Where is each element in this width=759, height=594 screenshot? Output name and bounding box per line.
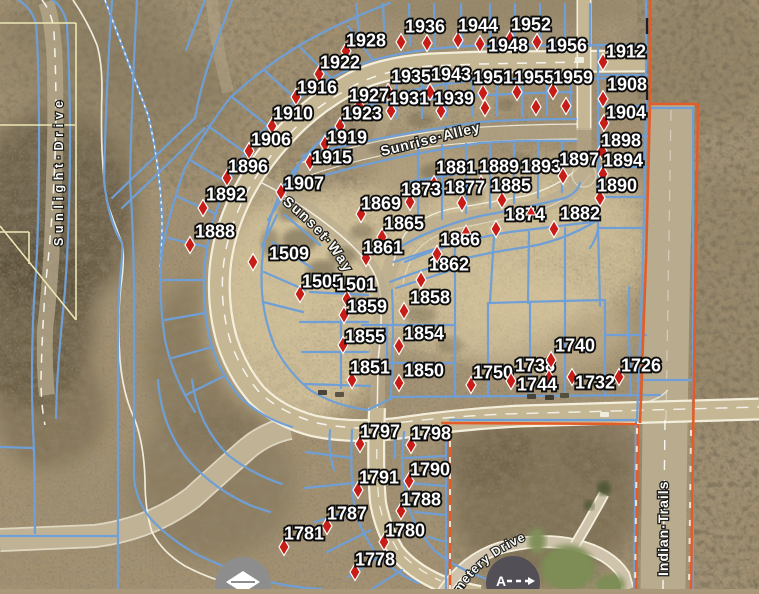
svg-text:1943: 1943	[431, 65, 471, 85]
svg-text:Indian·Trails: Indian·Trails	[655, 481, 671, 576]
svg-text:1923: 1923	[342, 104, 382, 124]
svg-text:1866: 1866	[440, 230, 480, 250]
svg-text:1935: 1935	[391, 67, 431, 87]
svg-text:1922: 1922	[320, 53, 360, 73]
svg-text:1897: 1897	[559, 150, 599, 170]
svg-text:1851: 1851	[350, 358, 390, 378]
svg-text:1888: 1888	[195, 222, 235, 242]
svg-text:1939: 1939	[434, 89, 474, 109]
svg-text:1855: 1855	[345, 327, 385, 347]
svg-text:1781: 1781	[284, 524, 324, 544]
svg-text:1881: 1881	[436, 158, 476, 178]
svg-text:1927: 1927	[349, 86, 389, 106]
svg-text:1912: 1912	[606, 42, 646, 62]
svg-text:1952: 1952	[511, 15, 551, 35]
svg-text:1501: 1501	[336, 275, 376, 295]
svg-text:1859: 1859	[347, 297, 387, 317]
svg-text:1894: 1894	[603, 151, 643, 171]
svg-text:A: A	[496, 573, 506, 589]
svg-text:1732: 1732	[575, 373, 615, 393]
svg-text:1865: 1865	[384, 214, 424, 234]
svg-text:1890: 1890	[597, 176, 637, 196]
svg-text:1948: 1948	[488, 36, 528, 56]
svg-text:1893: 1893	[521, 157, 561, 177]
svg-text:1956: 1956	[547, 36, 587, 56]
svg-text:1955: 1955	[514, 68, 554, 88]
svg-text:1882: 1882	[560, 204, 600, 224]
svg-text:1791: 1791	[359, 468, 399, 488]
svg-text:1788: 1788	[401, 490, 441, 510]
svg-text:1928: 1928	[346, 31, 386, 51]
svg-text:1896: 1896	[228, 157, 268, 177]
svg-text:1892: 1892	[206, 185, 246, 205]
svg-text:1898: 1898	[601, 131, 641, 151]
svg-text:Sunlight·Drive: Sunlight·Drive	[52, 96, 66, 246]
svg-text:1931: 1931	[389, 89, 429, 109]
svg-text:1509: 1509	[269, 244, 309, 264]
svg-text:1936: 1936	[405, 17, 445, 37]
svg-text:1778: 1778	[355, 550, 395, 570]
svg-text:1854: 1854	[404, 324, 444, 344]
svg-text:1908: 1908	[607, 75, 647, 95]
svg-text:1906: 1906	[251, 130, 291, 150]
svg-text:1780: 1780	[385, 521, 425, 541]
svg-text:1850: 1850	[404, 361, 444, 381]
svg-text:1919: 1919	[327, 128, 367, 148]
svg-text:1916: 1916	[297, 78, 337, 98]
svg-text:1874: 1874	[505, 205, 545, 225]
svg-text:1858: 1858	[410, 288, 450, 308]
svg-text:1790: 1790	[410, 460, 450, 480]
svg-text:1907: 1907	[284, 174, 324, 194]
svg-text:1873: 1873	[401, 180, 441, 200]
svg-text:1915: 1915	[312, 148, 352, 168]
svg-text:1744: 1744	[517, 375, 557, 395]
svg-text:1885: 1885	[491, 176, 531, 196]
svg-text:1910: 1910	[273, 104, 313, 124]
svg-text:1798: 1798	[411, 424, 451, 444]
svg-text:1951: 1951	[473, 68, 513, 88]
svg-text:1944: 1944	[458, 16, 498, 36]
svg-text:1889: 1889	[479, 157, 519, 177]
svg-text:1904: 1904	[606, 103, 646, 123]
svg-text:1726: 1726	[621, 356, 661, 376]
svg-text:1877: 1877	[445, 178, 485, 198]
svg-text:1861: 1861	[363, 238, 403, 258]
svg-text:1787: 1787	[327, 504, 367, 524]
svg-text:1797: 1797	[360, 422, 400, 442]
svg-text:1869: 1869	[361, 194, 401, 214]
svg-text:1740: 1740	[555, 336, 595, 356]
svg-text:1959: 1959	[553, 68, 593, 88]
